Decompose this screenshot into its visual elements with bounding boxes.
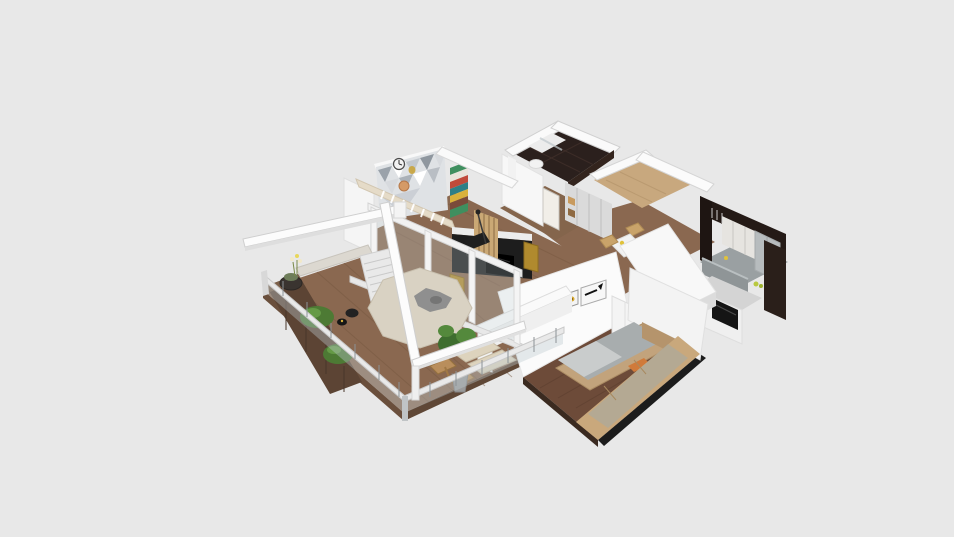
pergola-corner-post (412, 366, 419, 400)
railing-end-post (261, 270, 269, 296)
kitchen-dark-left-wall (700, 196, 712, 266)
bowl-succulent (284, 273, 298, 281)
lime-fruit (759, 284, 763, 288)
black-stool (346, 309, 359, 318)
floorplan-canvas[interactable] (0, 0, 954, 537)
flower-head (290, 257, 294, 261)
bathroom-door (543, 188, 559, 230)
railing-corner-post (402, 396, 408, 421)
lime-fruit (754, 282, 759, 287)
kitchen-dark-right-wall (764, 240, 786, 320)
copper-wall-mirror (399, 181, 409, 191)
side-table-dot (341, 320, 343, 322)
potted-plant-foliage (438, 325, 454, 337)
gold-wall-decor (409, 166, 416, 174)
flower-head (298, 259, 302, 263)
flower-head (295, 254, 299, 258)
floor-lamp-head (476, 210, 481, 215)
bathroom-toilet (529, 160, 543, 169)
gold-mosaic-panel (524, 242, 538, 272)
pergola-junction-post (394, 202, 406, 218)
lemon-fruit (724, 256, 728, 260)
tree-canopy-core (430, 296, 442, 304)
render-viewport (0, 0, 954, 537)
